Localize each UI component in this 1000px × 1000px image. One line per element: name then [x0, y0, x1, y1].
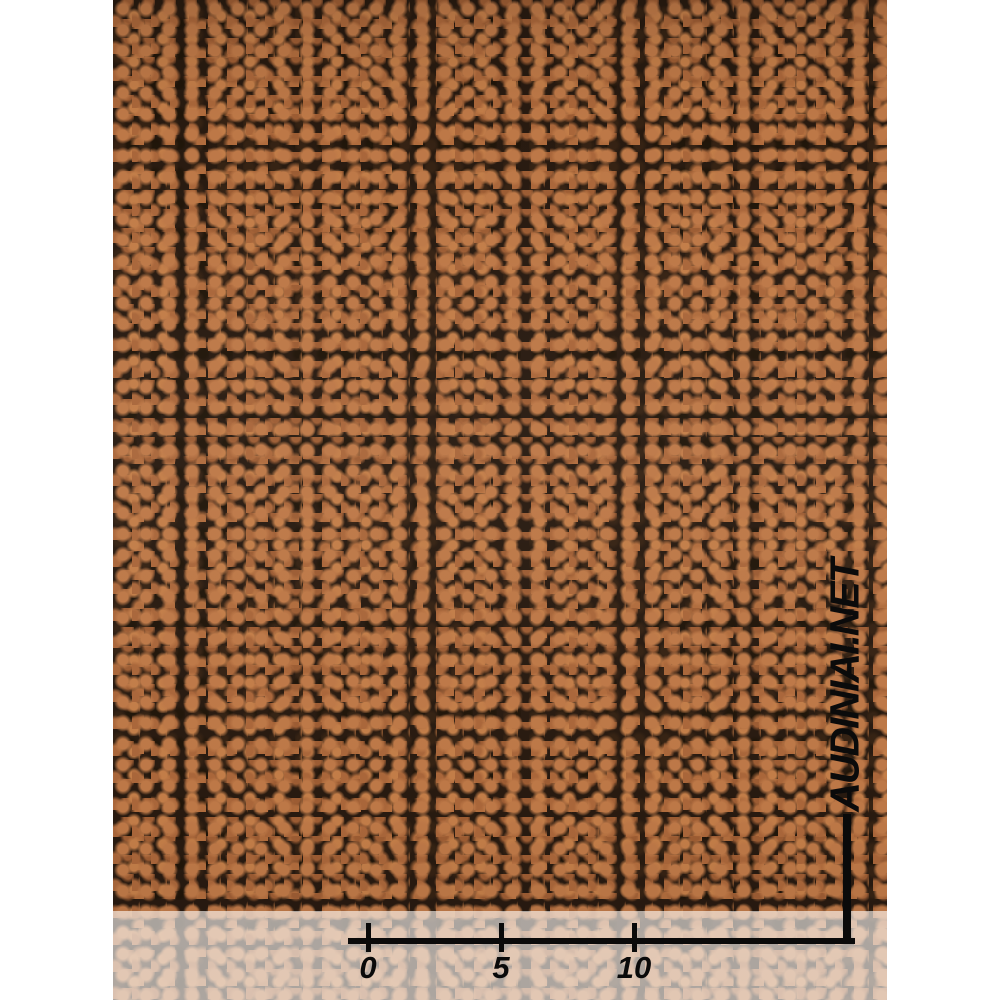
product-photo-page: 0 5 10 AUDINIAI.NET: [0, 0, 1000, 1000]
ruler-tick-label-10: 10: [604, 952, 664, 983]
ruler-horizontal-line: [348, 938, 855, 944]
ruler-tick-label-0: 0: [338, 952, 398, 983]
fabric-photo: 0 5 10 AUDINIAI.NET: [113, 0, 887, 1000]
ruler-tick-10: [632, 923, 637, 952]
ruler-vertical-line: [843, 814, 851, 944]
ruler-tick-0: [366, 923, 371, 952]
ruler-tick-5: [499, 923, 504, 952]
watermark-text: AUDINIAI.NET: [822, 560, 869, 812]
ruler-tick-label-5: 5: [471, 952, 531, 983]
